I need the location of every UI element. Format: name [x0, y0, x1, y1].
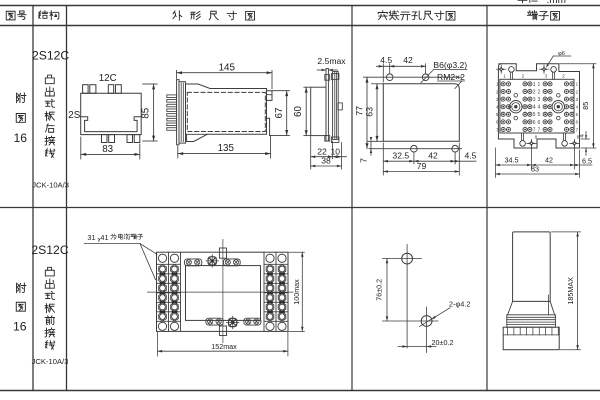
- svg-text:2: 2: [538, 89, 541, 95]
- svg-text:34.5: 34.5: [505, 156, 519, 165]
- svg-text:2: 2: [533, 89, 536, 95]
- svg-text:4: 4: [533, 105, 536, 111]
- svg-text:76±0.2: 76±0.2: [375, 279, 384, 301]
- svg-text:85: 85: [141, 107, 152, 118]
- svg-text:4.5: 4.5: [465, 151, 477, 161]
- svg-text:2.5max: 2.5max: [317, 56, 346, 66]
- svg-text:2-φ4.2: 2-φ4.2: [449, 299, 471, 308]
- svg-text:83: 83: [531, 165, 539, 174]
- svg-text:1: 1: [538, 82, 541, 88]
- svg-text:4: 4: [578, 134, 585, 138]
- svg-text:152max: 152max: [211, 342, 237, 351]
- svg-text:145: 145: [219, 63, 236, 74]
- svg-text:42: 42: [428, 151, 438, 161]
- svg-text:5: 5: [533, 112, 536, 118]
- svg-text:85: 85: [581, 102, 590, 110]
- svg-text:63: 63: [365, 107, 375, 117]
- svg-text:185MAX: 185MAX: [566, 277, 575, 305]
- svg-text:7: 7: [538, 127, 541, 133]
- svg-text:3: 3: [533, 97, 536, 103]
- svg-text:1: 1: [533, 82, 536, 88]
- svg-text:2S: 2S: [68, 110, 80, 121]
- svg-text:67: 67: [274, 108, 285, 119]
- svg-text:RM2×2: RM2×2: [437, 72, 465, 82]
- svg-text:38: 38: [321, 156, 331, 166]
- svg-text:4.5: 4.5: [380, 55, 392, 65]
- svg-text:6.5: 6.5: [582, 157, 592, 166]
- svg-text:79: 79: [417, 161, 427, 171]
- svg-text:77: 77: [354, 106, 364, 116]
- svg-text:42: 42: [403, 55, 413, 65]
- svg-text:3: 3: [538, 97, 541, 103]
- svg-text:5: 5: [538, 112, 541, 118]
- svg-text:JCK-10A/3: JCK-10A/3: [32, 357, 69, 366]
- svg-text:135: 135: [218, 143, 235, 154]
- svg-text:7: 7: [359, 158, 369, 163]
- svg-text:B6(φ3.2): B6(φ3.2): [433, 60, 467, 70]
- svg-text:41: 41: [100, 233, 108, 242]
- svg-text:6: 6: [533, 120, 536, 126]
- svg-text:6: 6: [538, 120, 541, 126]
- svg-text:60: 60: [293, 106, 304, 117]
- svg-text:20±0.2: 20±0.2: [432, 338, 454, 347]
- svg-text::mm: :mm: [547, 0, 566, 6]
- svg-text:12C: 12C: [99, 73, 117, 84]
- svg-text:JCK-10A/3: JCK-10A/3: [32, 180, 69, 189]
- svg-text:32.5: 32.5: [392, 151, 409, 161]
- svg-text:42: 42: [545, 156, 553, 165]
- svg-text:31: 31: [87, 233, 95, 242]
- svg-text:100max: 100max: [292, 279, 301, 305]
- svg-text:16: 16: [13, 319, 27, 333]
- svg-text:83: 83: [102, 144, 113, 155]
- svg-text:4: 4: [538, 105, 541, 111]
- svg-text:10: 10: [331, 146, 341, 156]
- svg-text:2S12C: 2S12C: [32, 48, 69, 62]
- svg-text:7: 7: [533, 127, 536, 133]
- svg-text:16: 16: [14, 131, 28, 145]
- svg-text:2S12C: 2S12C: [31, 243, 68, 257]
